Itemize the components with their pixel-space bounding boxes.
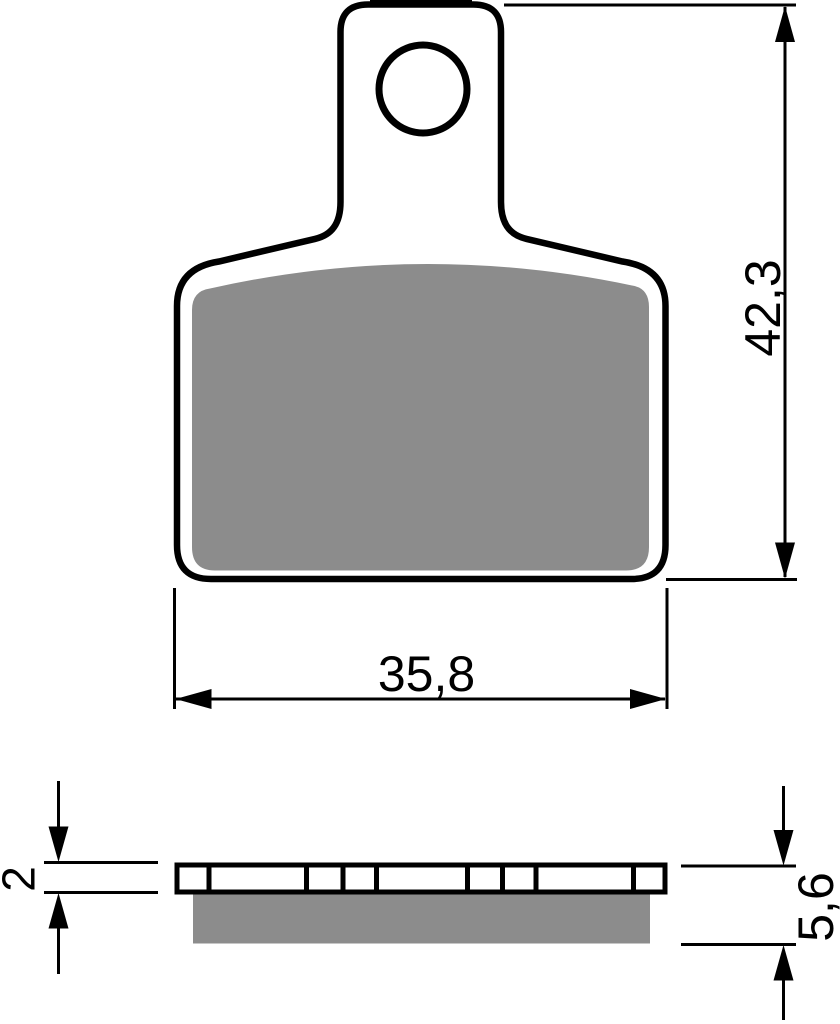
svg-text:2: 2 (0, 866, 45, 892)
svg-text:5,6: 5,6 (788, 872, 840, 942)
svg-text:35,8: 35,8 (378, 646, 475, 702)
svg-text:42,3: 42,3 (735, 259, 791, 356)
